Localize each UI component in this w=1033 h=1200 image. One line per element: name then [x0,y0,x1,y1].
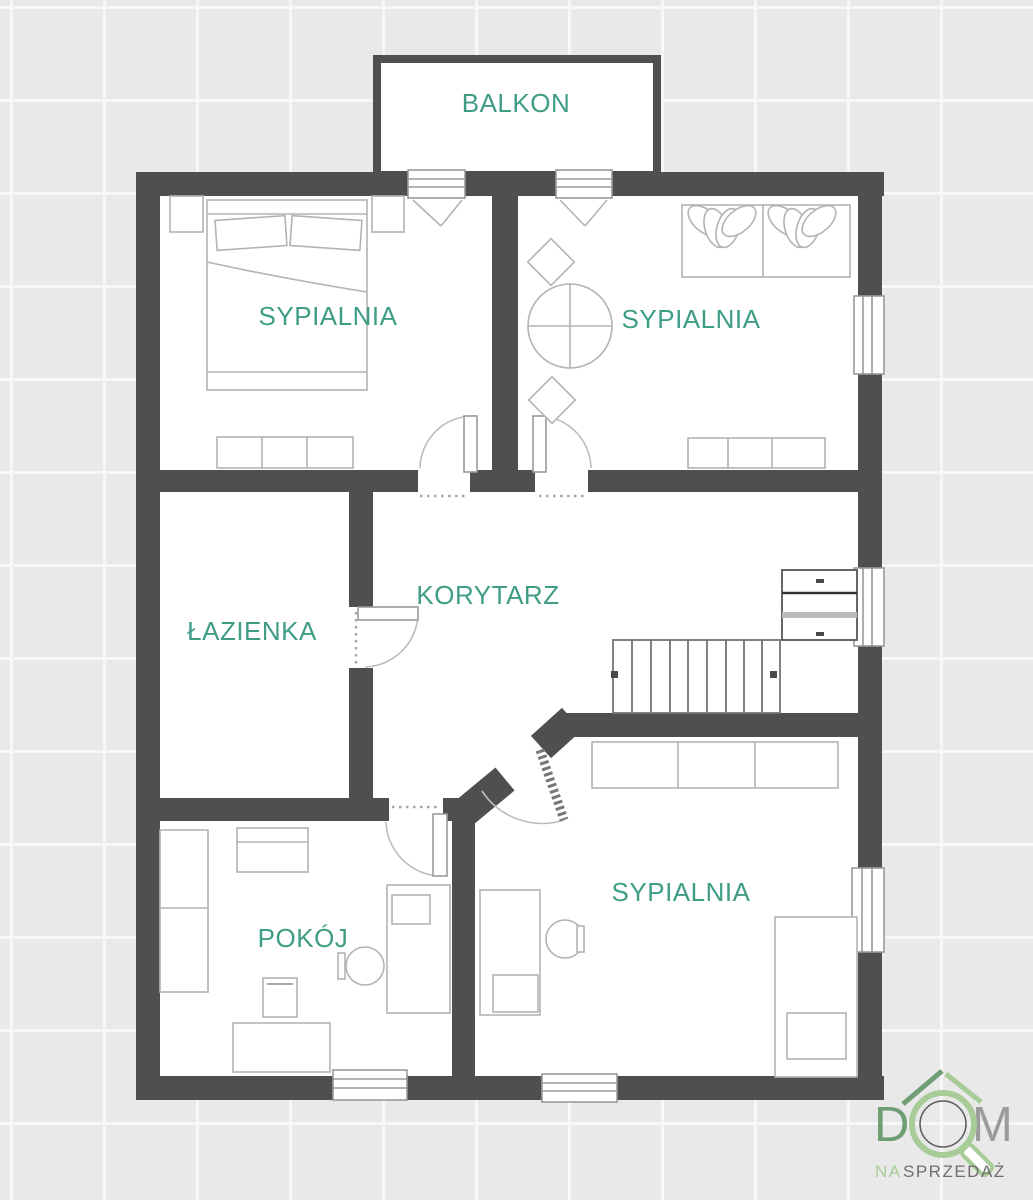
label-balkon: BALKON [462,88,571,118]
window-bottom-right [542,1074,617,1102]
round-table [528,284,612,368]
single-bed [775,917,857,1077]
label-sypialnia-bottom: SYPIALNIA [612,877,751,907]
double-bed [207,200,367,390]
desk-chair [546,920,584,958]
logo-sub-na: NA [875,1162,902,1181]
armchair [237,828,308,872]
desk [480,890,540,1015]
floor-plan-canvas: BALKON SYPIALNIA SYPIALNIA ŁAZIENKA KORY… [0,0,1033,1200]
diagonal-wall-upper [541,719,572,747]
label-pokoj: POKÓJ [258,923,349,953]
window-right-top [854,296,884,374]
table [233,1023,330,1072]
staircase [611,640,780,713]
label-korytarz: KORYTARZ [416,580,559,610]
window-bottom-left [333,1070,407,1100]
sofa [160,830,208,992]
desk [387,885,450,1013]
logo-letter-m: M [972,1098,1013,1152]
wardrobe [592,742,838,788]
floor-plan-svg: BALKON SYPIALNIA SYPIALNIA ŁAZIENKA KORY… [0,0,1033,1200]
label-sypialnia-top-left: SYPIALNIA [259,301,398,331]
bed-with-pillows [682,200,850,277]
logo-sub-sprzedaz: SPRZEDAŻ [903,1162,1006,1181]
dom-na-sprzedaz-logo: D M NA SPRZEDAŻ [874,1071,1013,1181]
nightstand-right [372,196,404,232]
nightstand-left [170,196,203,232]
cabinet [782,570,857,640]
window-right-middle [854,568,884,646]
label-lazienka: ŁAZIENKA [187,616,317,646]
logo-letter-d: D [874,1098,909,1152]
dresser-bottom [217,437,353,468]
label-sypialnia-top-right: SYPIALNIA [622,304,761,334]
dresser-bottom [688,438,825,468]
stool [263,978,297,1017]
